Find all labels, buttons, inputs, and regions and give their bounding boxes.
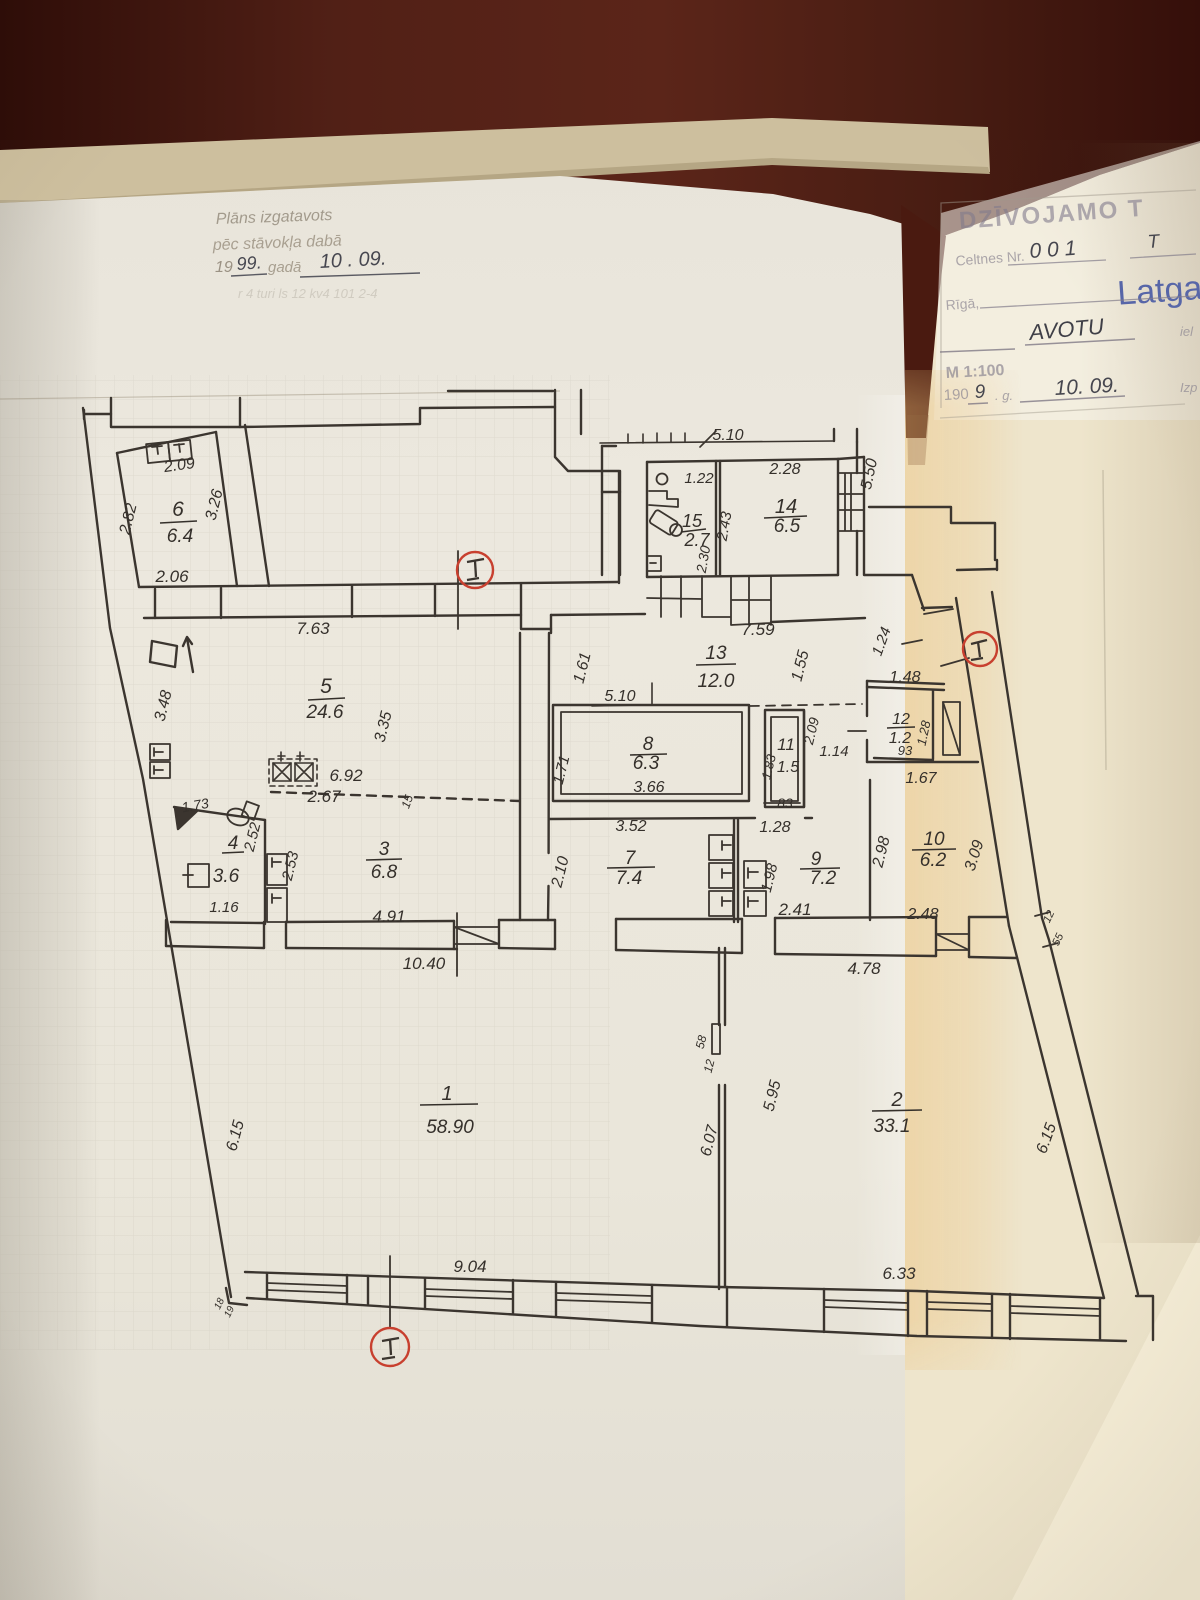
svg-text:6.92: 6.92 — [329, 766, 363, 785]
svg-text:4: 4 — [228, 833, 239, 854]
svg-text:6.8: 6.8 — [371, 862, 398, 883]
svg-text:3.6: 3.6 — [213, 866, 240, 887]
svg-text:7.63: 7.63 — [296, 619, 330, 638]
svg-text:Izp: Izp — [1180, 380, 1197, 395]
svg-text:1.22: 1.22 — [684, 470, 714, 487]
svg-text:. g.: . g. — [995, 388, 1013, 403]
svg-text:33.1: 33.1 — [874, 1116, 911, 1137]
svg-text:19: 19 — [215, 259, 233, 276]
svg-text:2: 2 — [890, 1089, 902, 1111]
svg-text:13: 13 — [705, 643, 727, 664]
svg-text:7: 7 — [625, 848, 637, 869]
svg-text:9: 9 — [974, 381, 986, 403]
svg-text:5.10: 5.10 — [712, 427, 743, 444]
svg-text:1.48: 1.48 — [889, 669, 920, 686]
svg-text:99.: 99. — [236, 252, 262, 274]
svg-text:1: 1 — [441, 1083, 452, 1105]
svg-text:10. 09.: 10. 09. — [1054, 374, 1119, 400]
svg-text:r 4 turi ls 12 kv4 101 2-4: r 4 turi ls 12 kv4 101 2-4 — [238, 286, 377, 301]
svg-text:2.41: 2.41 — [777, 900, 811, 919]
svg-text:10 . 09.: 10 . 09. — [319, 248, 387, 273]
svg-text:190: 190 — [943, 386, 969, 404]
svg-text:8: 8 — [643, 734, 654, 755]
svg-text:12: 12 — [892, 711, 910, 728]
svg-text:6.33: 6.33 — [882, 1264, 916, 1283]
svg-text:1.28: 1.28 — [759, 819, 790, 836]
svg-text:83: 83 — [777, 795, 793, 811]
svg-text:12.0: 12.0 — [698, 671, 735, 692]
svg-text:Rīgā,: Rīgā, — [945, 295, 980, 313]
svg-text:9.04: 9.04 — [453, 1257, 486, 1276]
svg-text:15: 15 — [682, 511, 703, 531]
svg-text:1.67: 1.67 — [905, 770, 937, 787]
svg-text:2.67: 2.67 — [306, 787, 341, 806]
svg-text:6.4: 6.4 — [167, 526, 193, 547]
svg-text:2.28: 2.28 — [768, 461, 800, 478]
svg-text:7.59: 7.59 — [741, 620, 775, 639]
svg-text:3.52: 3.52 — [615, 818, 646, 835]
svg-text:93: 93 — [898, 743, 913, 758]
svg-text:6.3: 6.3 — [633, 753, 660, 774]
svg-text:4.78: 4.78 — [847, 959, 881, 978]
svg-text:24.6: 24.6 — [306, 702, 344, 723]
svg-text:6: 6 — [172, 498, 184, 521]
svg-text:1.5: 1.5 — [777, 759, 799, 776]
svg-text:iel: iel — [1180, 324, 1194, 339]
svg-text:5: 5 — [320, 675, 332, 698]
svg-text:6.5: 6.5 — [774, 516, 801, 537]
svg-text:11: 11 — [777, 735, 795, 754]
svg-text:3: 3 — [379, 839, 390, 860]
svg-text:9: 9 — [811, 849, 822, 870]
svg-text:2.48: 2.48 — [906, 906, 938, 923]
svg-text:0 0 1: 0 0 1 — [1029, 237, 1077, 263]
svg-text:58.90: 58.90 — [426, 1117, 474, 1138]
svg-text:10: 10 — [923, 829, 945, 850]
svg-text:2.06: 2.06 — [154, 567, 189, 586]
svg-text:5.10: 5.10 — [604, 688, 635, 705]
svg-text:1.16: 1.16 — [209, 899, 239, 916]
svg-text:7.4: 7.4 — [616, 868, 642, 889]
svg-text:4.91: 4.91 — [372, 907, 405, 926]
svg-text:M 1:100: M 1:100 — [945, 362, 1005, 382]
svg-text:7.2: 7.2 — [810, 868, 837, 889]
svg-text:1.14: 1.14 — [819, 743, 848, 760]
svg-text:10.40: 10.40 — [403, 954, 446, 973]
svg-text:Latga: Latga — [1116, 269, 1200, 313]
svg-text:gadā: gadā — [268, 259, 301, 276]
svg-text:3.66: 3.66 — [633, 779, 664, 796]
svg-text:14: 14 — [775, 496, 797, 518]
svg-text:6.2: 6.2 — [920, 850, 947, 871]
